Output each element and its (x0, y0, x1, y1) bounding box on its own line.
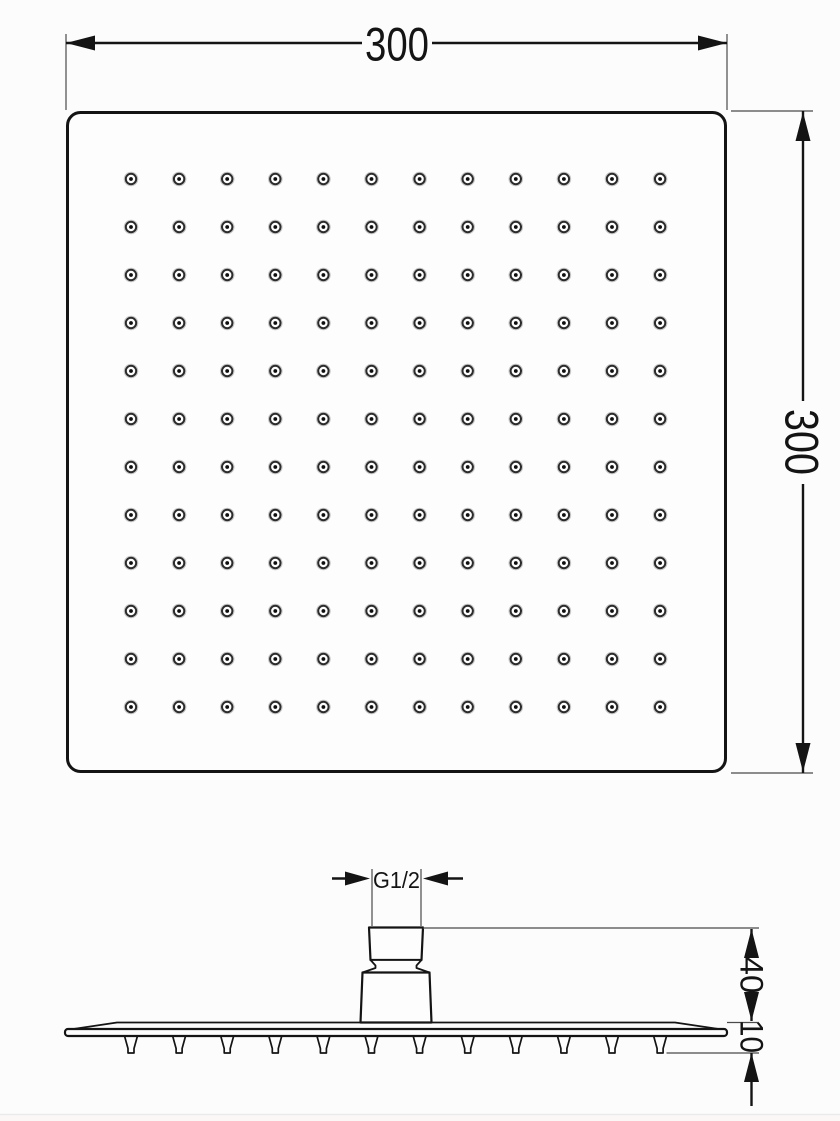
nozzle (124, 412, 138, 426)
nozzle (557, 700, 571, 714)
nozzle (557, 604, 571, 618)
thread-connector (369, 928, 423, 961)
nozzle (605, 364, 619, 378)
nozzle (220, 652, 234, 666)
nozzle (220, 460, 234, 474)
nozzle (509, 652, 523, 666)
nozzle-tooth (269, 1036, 282, 1054)
nozzle (509, 268, 523, 282)
nozzle (605, 604, 619, 618)
nozzle (413, 220, 427, 234)
nozzle (509, 364, 523, 378)
nozzle (172, 364, 186, 378)
dim-width: 300 (66, 18, 727, 111)
nozzle (365, 268, 379, 282)
nozzle (461, 508, 475, 522)
nozzle (269, 364, 283, 378)
nozzle (653, 268, 667, 282)
nozzle (413, 508, 427, 522)
nozzle (365, 220, 379, 234)
nozzle (220, 556, 234, 570)
nozzle (413, 364, 427, 378)
side-view (65, 928, 727, 1054)
nozzle (413, 700, 427, 714)
arrowhead-right-icon (698, 36, 727, 51)
plate-slab (65, 1029, 727, 1036)
nozzle (365, 604, 379, 618)
arrowhead-up-icon (744, 929, 759, 958)
nozzle (557, 652, 571, 666)
nozzle (317, 412, 331, 426)
nozzle (124, 364, 138, 378)
nozzle (509, 412, 523, 426)
nozzle (317, 556, 331, 570)
nozzle (220, 604, 234, 618)
nozzle (124, 604, 138, 618)
nozzle (605, 412, 619, 426)
nozzle (124, 652, 138, 666)
nozzle (124, 172, 138, 186)
nozzle (124, 700, 138, 714)
nozzle-tooth (365, 1036, 378, 1054)
nozzle (269, 700, 283, 714)
connector-height-label: 40 (734, 957, 770, 994)
nozzle (413, 460, 427, 474)
nozzle (317, 316, 331, 330)
nozzle (461, 172, 475, 186)
arrowhead-down-icon (744, 992, 759, 1021)
nozzle (413, 604, 427, 618)
nozzle (124, 316, 138, 330)
nozzle (317, 364, 331, 378)
nozzle (557, 508, 571, 522)
nozzle (172, 700, 186, 714)
nozzle (653, 460, 667, 474)
nozzle (172, 316, 186, 330)
nozzle (605, 700, 619, 714)
width-dimension-label: 300 (365, 18, 429, 71)
nozzle (365, 556, 379, 570)
nozzle-tooth (557, 1036, 570, 1054)
nozzle (605, 172, 619, 186)
nozzle (220, 316, 234, 330)
nozzle (509, 316, 523, 330)
nozzle-tooth (124, 1036, 137, 1054)
nozzle (413, 268, 427, 282)
nozzle (413, 556, 427, 570)
nozzle (605, 220, 619, 234)
nozzle (317, 508, 331, 522)
drawing-canvas: 300 300 G1/2 (0, 0, 840, 1121)
nozzle (220, 412, 234, 426)
nozzle (317, 604, 331, 618)
nozzle (269, 652, 283, 666)
height-dimension-label: 300 (776, 409, 829, 475)
nozzle (269, 508, 283, 522)
nozzle (269, 460, 283, 474)
nozzle (269, 268, 283, 282)
nozzle-tooth (461, 1036, 474, 1054)
nozzle (509, 508, 523, 522)
arrowhead-right-icon (345, 872, 370, 886)
dim-height: 300 (731, 111, 829, 773)
nozzle (220, 364, 234, 378)
nozzle (269, 172, 283, 186)
shower-plate-outline (68, 113, 726, 772)
nozzle-tooth (221, 1036, 234, 1054)
nozzle (509, 172, 523, 186)
teeth-row (124, 1036, 666, 1054)
nozzle (461, 604, 475, 618)
nozzle (220, 172, 234, 186)
nozzle (653, 652, 667, 666)
nozzle (269, 412, 283, 426)
nozzle (461, 412, 475, 426)
nozzle (365, 460, 379, 474)
nozzle (172, 220, 186, 234)
nozzle (653, 508, 667, 522)
connector-base (361, 973, 432, 1023)
nozzle (461, 220, 475, 234)
nozzle (269, 316, 283, 330)
nozzle (365, 652, 379, 666)
nozzle (172, 268, 186, 282)
nozzle-tooth (173, 1036, 186, 1054)
nozzle (557, 364, 571, 378)
nozzle (172, 412, 186, 426)
technical-drawing: 300 300 G1/2 (0, 0, 840, 1121)
nozzle-tooth (317, 1036, 330, 1054)
nozzle (509, 700, 523, 714)
page-bottom-strip (0, 1116, 840, 1121)
nozzle (269, 220, 283, 234)
nozzle (365, 316, 379, 330)
nozzle (269, 604, 283, 618)
nozzle (220, 220, 234, 234)
nozzle (172, 460, 186, 474)
nozzle (317, 220, 331, 234)
nozzle (461, 460, 475, 474)
nozzle (413, 172, 427, 186)
nozzle (124, 508, 138, 522)
nozzle (653, 172, 667, 186)
nozzle (509, 460, 523, 474)
nozzle (653, 556, 667, 570)
nozzle (461, 316, 475, 330)
nozzle (605, 508, 619, 522)
nozzle (365, 172, 379, 186)
nozzle (509, 556, 523, 570)
nozzle (124, 556, 138, 570)
nozzle (220, 268, 234, 282)
nozzle-tooth (605, 1036, 618, 1054)
nozzle (653, 364, 667, 378)
nozzle (365, 508, 379, 522)
nozzle (509, 220, 523, 234)
nozzle (653, 412, 667, 426)
nozzle (605, 316, 619, 330)
nozzle (557, 268, 571, 282)
nozzle (172, 604, 186, 618)
nozzle (605, 268, 619, 282)
dim-thread: G1/2 (332, 867, 463, 926)
nozzle (269, 556, 283, 570)
nozzle (605, 556, 619, 570)
nozzle (557, 460, 571, 474)
nozzle (653, 316, 667, 330)
nozzle (124, 268, 138, 282)
nozzle (653, 220, 667, 234)
nozzle (317, 268, 331, 282)
nozzle (124, 220, 138, 234)
nozzle (605, 460, 619, 474)
nozzle (317, 700, 331, 714)
arrowhead-up-icon (744, 1053, 759, 1082)
nozzle (124, 460, 138, 474)
nozzle (557, 412, 571, 426)
nozzle (220, 508, 234, 522)
nozzle (461, 364, 475, 378)
plate-thickness-label: 10 (734, 1020, 770, 1053)
dim-connector-height: 40 (423, 928, 770, 1023)
nozzle-tooth (509, 1036, 522, 1054)
nozzle (461, 700, 475, 714)
nozzle (317, 652, 331, 666)
nozzle-tooth (654, 1036, 667, 1054)
nozzle (413, 412, 427, 426)
top-view (68, 113, 726, 772)
nozzle (172, 556, 186, 570)
nozzle (461, 652, 475, 666)
nozzle (172, 508, 186, 522)
nozzle (461, 556, 475, 570)
nozzle (557, 556, 571, 570)
nozzle (365, 700, 379, 714)
nozzle (413, 652, 427, 666)
connector-neck (363, 960, 430, 973)
nozzle (365, 364, 379, 378)
arrowhead-left-icon (66, 36, 95, 51)
nozzle (172, 652, 186, 666)
nozzle (605, 652, 619, 666)
nozzle (557, 220, 571, 234)
nozzle-tooth (413, 1036, 426, 1054)
nozzle (557, 172, 571, 186)
nozzle (413, 316, 427, 330)
nozzle (365, 412, 379, 426)
nozzle (509, 604, 523, 618)
nozzle (653, 700, 667, 714)
nozzle (653, 604, 667, 618)
arrowhead-up-icon (796, 112, 811, 141)
thread-dimension-label: G1/2 (373, 867, 420, 893)
nozzle (461, 268, 475, 282)
nozzle (557, 316, 571, 330)
nozzle (220, 700, 234, 714)
nozzle (317, 172, 331, 186)
arrowhead-down-icon (796, 743, 811, 772)
arrowhead-left-icon (423, 872, 448, 886)
nozzle (172, 172, 186, 186)
nozzle (317, 460, 331, 474)
